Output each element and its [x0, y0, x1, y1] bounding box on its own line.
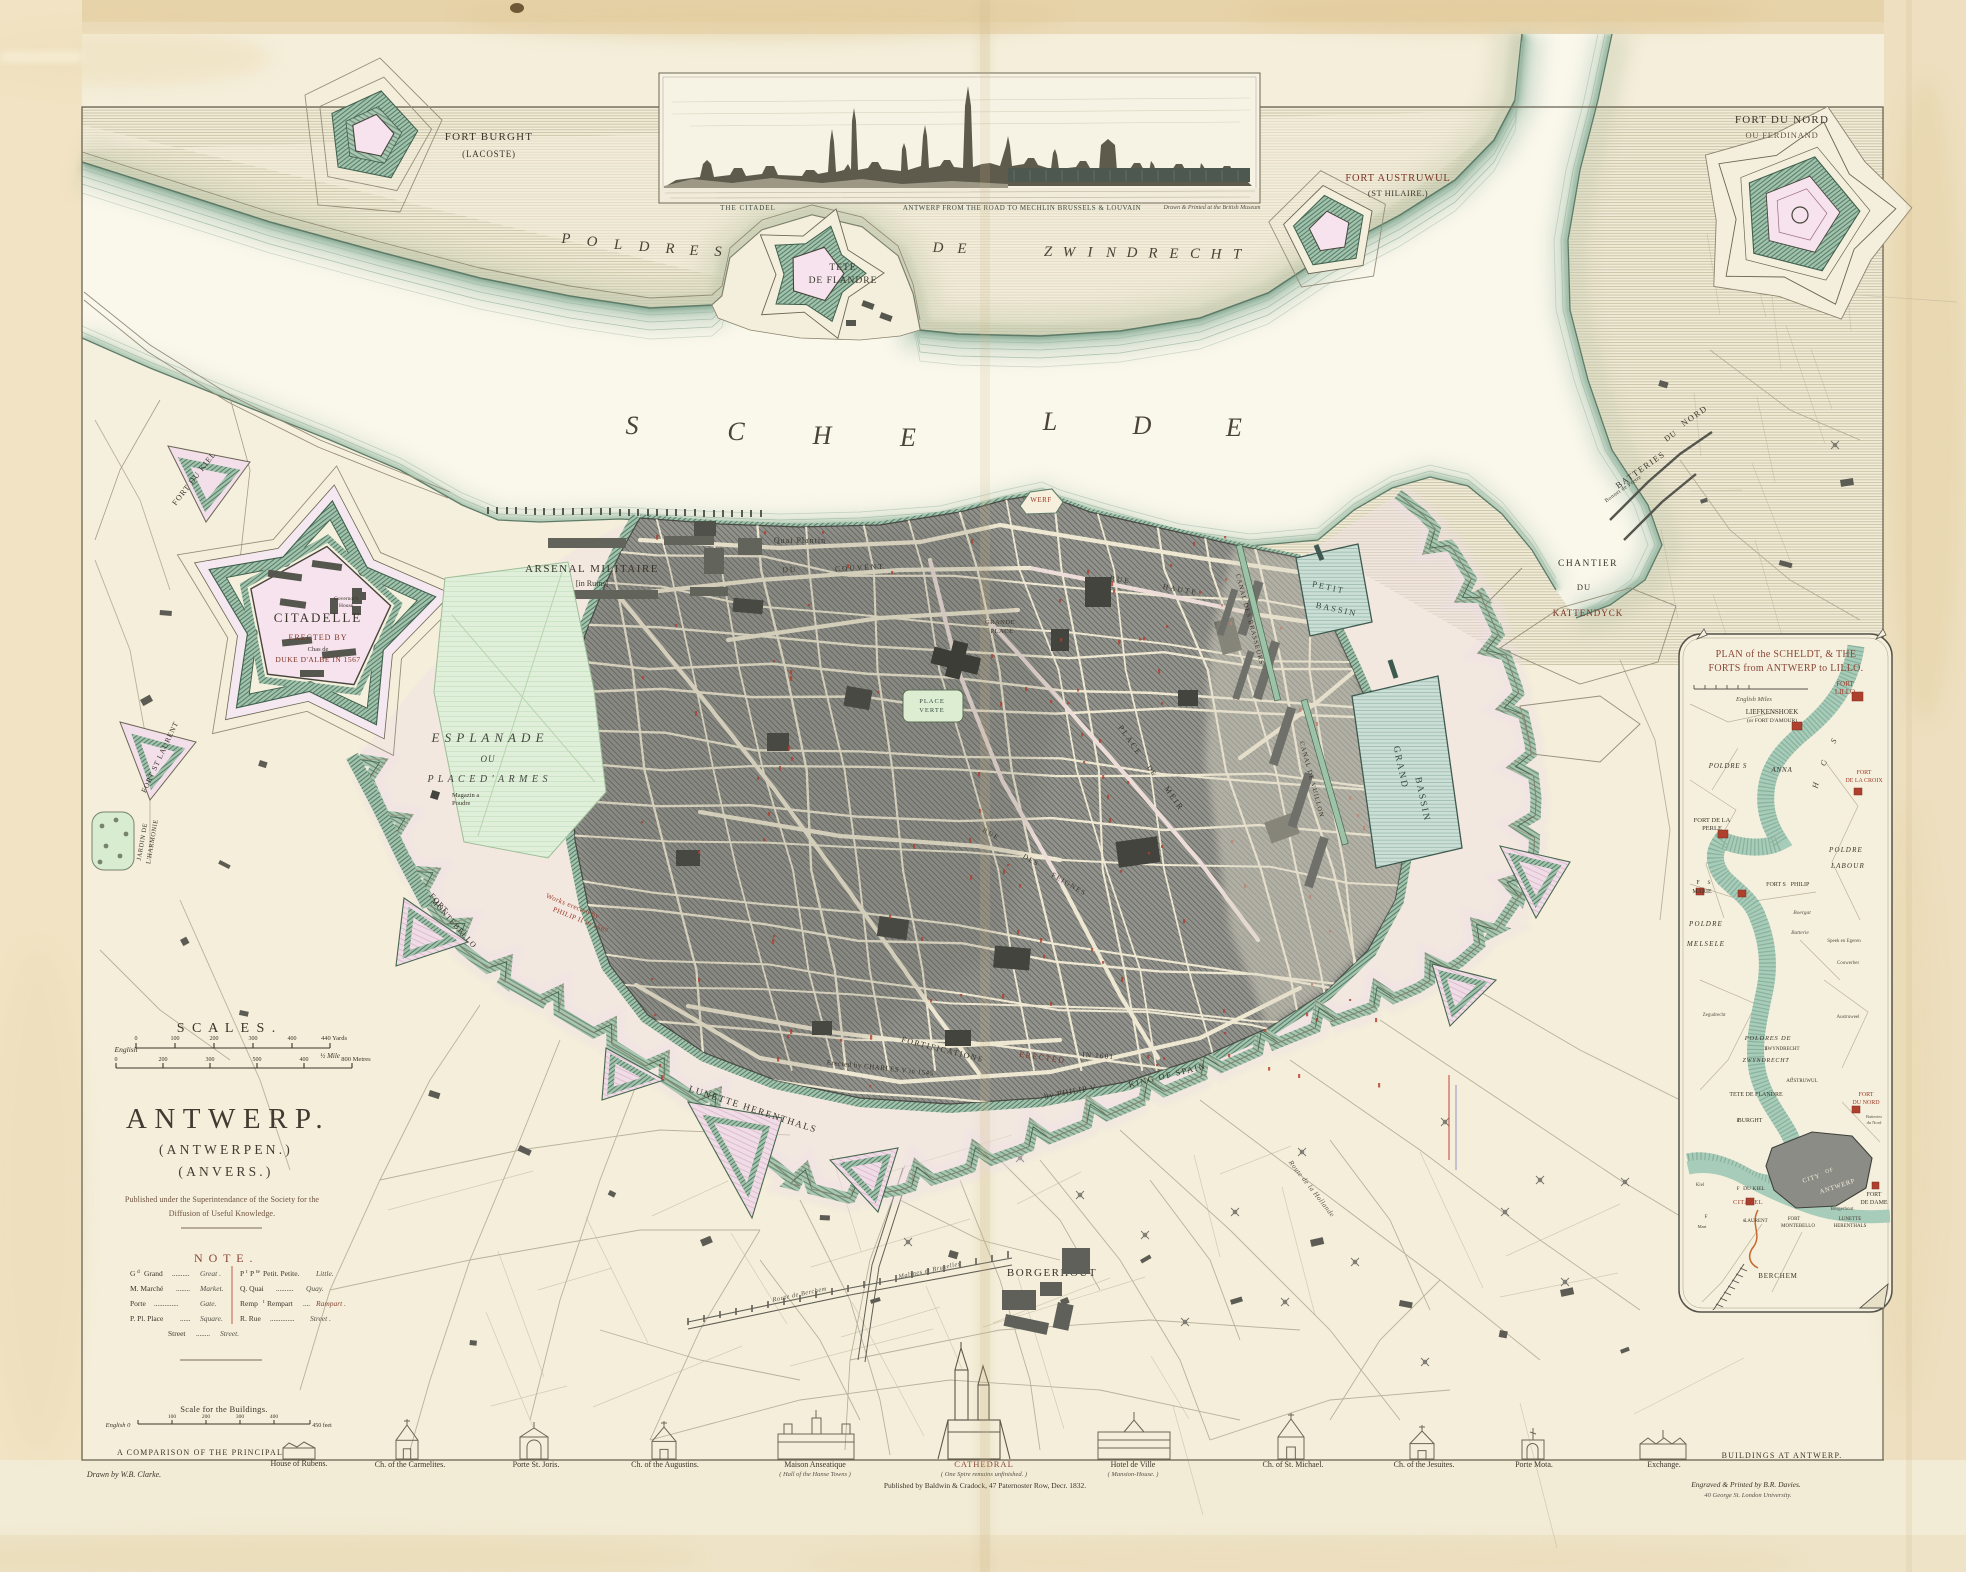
svg-text:G: G [130, 1269, 136, 1278]
svg-text:ANNA: ANNA [1770, 766, 1792, 774]
svg-text:OU FERDINAND: OU FERDINAND [1745, 130, 1818, 140]
svg-text:Mart: Mart [1698, 1224, 1707, 1229]
svg-text:POLDRE: POLDRE [1828, 846, 1863, 854]
svg-text:L: L [613, 237, 622, 253]
svg-text:BERCHEM: BERCHEM [1758, 1272, 1797, 1280]
svg-text:Gate.: Gate. [200, 1299, 217, 1308]
svg-text:Ch. of St. Michael.: Ch. of St. Michael. [1263, 1460, 1324, 1469]
svg-text:VERTE: VERTE [919, 707, 945, 714]
svg-text:450 feet: 450 feet [312, 1422, 332, 1429]
svg-text:CITADEL: CITADEL [1733, 1199, 1763, 1206]
svg-text:BUILDINGS AT ANTWERP.: BUILDINGS AT ANTWERP. [1722, 1451, 1843, 1460]
svg-text:MELSELE: MELSELE [1686, 940, 1725, 948]
svg-text:E: E [1225, 413, 1242, 442]
svg-text:CITADELLE: CITADELLE [274, 610, 362, 625]
svg-text:S C A L E S .: S C A L E S . [177, 1021, 278, 1036]
svg-text:100: 100 [168, 1414, 177, 1420]
svg-text:( Hall of the Hanse Towns ): ( Hall of the Hanse Towns ) [779, 1471, 851, 1478]
svg-text:DU: DU [1577, 582, 1591, 592]
svg-text:English Miles: English Miles [1735, 696, 1772, 703]
svg-text:200: 200 [210, 1036, 219, 1042]
svg-text:E: E [956, 241, 966, 257]
svg-text:Exchange.: Exchange. [1647, 1460, 1681, 1469]
svg-text:TETE DE FLANDRE: TETE DE FLANDRE [1729, 1092, 1783, 1098]
svg-text:Batteries: Batteries [1866, 1114, 1882, 1119]
svg-text:R: R [1147, 246, 1157, 262]
svg-text:W: W [1063, 244, 1077, 260]
svg-text:D: D [638, 239, 650, 255]
svg-text:FORT AUSTRUWUL: FORT AUSTRUWUL [1345, 173, 1450, 184]
svg-text:........: ........ [176, 1285, 190, 1293]
svg-text:House: House [339, 603, 354, 609]
svg-text:Rampart .: Rampart . [315, 1299, 346, 1308]
svg-text:CHANTIER: CHANTIER [1558, 559, 1618, 569]
svg-text:FORT: FORT [1857, 770, 1872, 776]
svg-text:........: ........ [196, 1330, 210, 1338]
svg-text:PLACE: PLACE [919, 698, 945, 705]
svg-text:E: E [688, 243, 698, 259]
svg-text:DE LA CROIX: DE LA CROIX [1845, 778, 1883, 784]
svg-text:Street.: Street. [220, 1329, 239, 1338]
svg-text:FORT DE LA: FORT DE LA [1694, 817, 1731, 824]
svg-text:Little.: Little. [315, 1269, 334, 1278]
svg-text:ANTWERP FROM THE ROAD TO: ANTWERP FROM THE ROAD TO MECHLIN BRUSSEL… [903, 204, 1141, 212]
svg-text:ARSENAL MILITAIRE: ARSENAL MILITAIRE [525, 563, 659, 575]
svg-text:0: 0 [135, 1036, 138, 1042]
svg-text:FORT DU NORD: FORT DU NORD [1735, 114, 1829, 126]
svg-text:POLDRES DE: POLDRES DE [1744, 1035, 1791, 1042]
svg-text:100: 100 [171, 1036, 180, 1042]
svg-text:Rempart: Rempart [267, 1299, 294, 1308]
svg-text:400: 400 [288, 1036, 297, 1042]
svg-text:HERENTHALS: HERENTHALS [1834, 1224, 1867, 1229]
svg-text:ERECTED BY: ERECTED BY [288, 633, 347, 642]
svg-text:POLDRE: POLDRE [1688, 920, 1723, 928]
svg-text:440 Yards: 440 Yards [321, 1035, 347, 1042]
svg-text:300: 300 [236, 1414, 245, 1420]
svg-text:E S P L A N A D E: E S P L A N A D E [430, 730, 544, 745]
svg-text:Diffusion of Useful Knowledge.: Diffusion of Useful Knowledge. [169, 1209, 275, 1218]
svg-text:Zegudrecht: Zegudrecht [1703, 1013, 1726, 1018]
svg-text:Drawn & Printed at the British: Drawn & Printed at the British Museum [1163, 205, 1262, 211]
svg-text:Borgerhout: Borgerhout [1831, 1207, 1854, 1212]
svg-text:(LACOSTE): (LACOSTE) [462, 149, 516, 159]
svg-text:..............: .............. [154, 1300, 179, 1308]
svg-text:800 Metres: 800 Metres [341, 1056, 371, 1063]
svg-text:Magazin a: Magazin a [452, 792, 479, 799]
svg-text:FORT: FORT [1859, 1092, 1874, 1098]
svg-text:M. Marché: M. Marché [130, 1284, 164, 1293]
svg-text:Hotel de Ville: Hotel de Ville [1111, 1460, 1156, 1469]
svg-text:P: P [560, 231, 570, 247]
svg-text:L: L [1042, 407, 1057, 436]
svg-text:S: S [626, 411, 639, 440]
svg-text:PLACE: PLACE [990, 628, 1013, 635]
svg-text:300: 300 [249, 1036, 258, 1042]
svg-text:English: English [114, 1045, 138, 1054]
svg-text:½ Mile: ½ Mile [320, 1052, 340, 1060]
svg-text:A COMPARISON OF THE PRINCI: A COMPARISON OF THE PRINCIPAL [117, 1448, 283, 1457]
svg-text:DE DAME: DE DAME [1860, 1200, 1887, 1206]
svg-text:Porte Mota.: Porte Mota. [1515, 1460, 1553, 1469]
svg-text:S: S [714, 244, 722, 260]
svg-text:LAURENT: LAURENT [1744, 1219, 1767, 1224]
svg-text:POLDRE S: POLDRE S [1708, 762, 1747, 770]
svg-text:Street .: Street . [310, 1314, 331, 1323]
svg-text:F: F [1737, 1187, 1740, 1192]
svg-text:FORT: FORT [1836, 680, 1854, 688]
svg-text:Ch. of the Augustins.: Ch. of the Augustins. [631, 1460, 699, 1469]
svg-text:FORT BURGHT: FORT BURGHT [445, 131, 533, 143]
svg-text:PLAN of the SCHELDT, & THE: PLAN of the SCHELDT, & THE [1716, 649, 1857, 660]
svg-text:....: .... [303, 1300, 310, 1308]
svg-text:Quai Plantin: Quai Plantin [774, 536, 826, 545]
svg-text:AUSTRUWUL: AUSTRUWUL [1786, 1079, 1817, 1084]
svg-text:Porte: Porte [130, 1299, 147, 1308]
svg-text:H: H [1210, 246, 1223, 262]
svg-text:F: F [1705, 1215, 1708, 1220]
svg-text:P L A C E D ' A R M E S: P L A C E D ' A R M E S [427, 774, 549, 785]
svg-text:Kiel: Kiel [1696, 1183, 1705, 1188]
svg-text:Ch. of the Carmelites.: Ch. of the Carmelites. [375, 1460, 445, 1469]
svg-text:..........: .......... [172, 1270, 190, 1278]
svg-text:LUNETTE: LUNETTE [1839, 1217, 1862, 1222]
svg-text:FORT S: FORT S [1766, 882, 1786, 888]
svg-text:Couwerber: Couwerber [1837, 961, 1860, 966]
svg-text:Scale for the Buildings.: Scale for the Buildings. [180, 1404, 267, 1414]
svg-text:400: 400 [300, 1057, 309, 1063]
svg-text:D: D [1132, 411, 1152, 440]
svg-text:300: 300 [206, 1057, 215, 1063]
svg-text:WERF: WERF [1030, 496, 1051, 504]
svg-text:N: N [1105, 245, 1117, 261]
svg-text:LABOUR: LABOUR [1830, 862, 1865, 870]
svg-text:C: C [727, 417, 745, 446]
svg-text:English 0: English 0 [105, 1422, 131, 1429]
svg-text:Quay.: Quay. [306, 1284, 324, 1293]
svg-text:O: O [587, 234, 598, 250]
svg-text:200: 200 [202, 1414, 211, 1420]
svg-text:......: ...... [180, 1315, 191, 1323]
svg-text:Governor's: Governor's [334, 596, 358, 602]
svg-text:KATTENDYCK: KATTENDYCK [1553, 608, 1624, 618]
svg-text:Great .: Great . [200, 1269, 221, 1278]
svg-text:(or FORT D'AMOUR): (or FORT D'AMOUR) [1747, 717, 1797, 724]
svg-text:400: 400 [270, 1414, 279, 1420]
svg-text:E: E [1168, 246, 1178, 262]
svg-text:200: 200 [159, 1057, 168, 1063]
svg-text:Batterie: Batterie [1791, 930, 1809, 936]
svg-text:(ANVERS.): (ANVERS.) [178, 1164, 273, 1179]
svg-text:..........: .......... [276, 1285, 294, 1293]
svg-text:DU KIEL: DU KIEL [1743, 1186, 1765, 1192]
svg-text:R. Rue: R. Rue [240, 1314, 262, 1323]
svg-text:Remp: Remp [240, 1299, 258, 1308]
svg-text:Market.: Market. [199, 1284, 224, 1293]
svg-text:OU: OU [481, 754, 496, 764]
svg-text:DU: DU [782, 565, 797, 575]
svg-text:P: P [240, 1269, 244, 1278]
svg-text:P. Pl. Place: P. Pl. Place [130, 1314, 164, 1323]
svg-text:d: d [137, 1269, 140, 1275]
svg-text:LILLO: LILLO [1835, 688, 1855, 696]
svg-text:Poudre: Poudre [452, 800, 471, 807]
svg-text:Z: Z [1044, 244, 1053, 260]
svg-text:te: te [256, 1269, 261, 1275]
svg-text:BURGHT: BURGHT [1738, 1118, 1763, 1124]
svg-text:House of Rubens.: House of Rubens. [270, 1459, 327, 1468]
svg-text:DE FLANDRE: DE FLANDRE [809, 276, 878, 286]
svg-text:Ch. of the Jesuites.: Ch. of the Jesuites. [1394, 1460, 1455, 1469]
svg-text:N O T E .: N O T E . [194, 1251, 254, 1265]
svg-text:(ST HILAIRE.): (ST HILAIRE.) [1368, 188, 1428, 198]
svg-text:..............: .............. [270, 1315, 295, 1323]
svg-text:FORT: FORT [1788, 1217, 1800, 1222]
svg-text:Boergat: Boergat [1793, 910, 1811, 916]
svg-text:(ANTWERPEN.): (ANTWERPEN.) [159, 1142, 293, 1157]
svg-text:ZWYNDRECHT: ZWYNDRECHT [1765, 1047, 1800, 1052]
svg-text:ANTWERP.: ANTWERP. [126, 1103, 330, 1135]
svg-text:DUKE D'ALBE IN 1567: DUKE D'ALBE IN 1567 [275, 655, 360, 664]
svg-text:40 George St. London Universit: 40 George St. London University. [1704, 1492, 1792, 1499]
svg-text:FORTS from ANTWERP to LILLO.: FORTS from ANTWERP to LILLO. [1709, 663, 1864, 674]
svg-text:THE CITADEL: THE CITADEL [720, 204, 776, 212]
svg-text:PERLE: PERLE [1702, 825, 1722, 832]
svg-text:[in Ruins]: [in Ruins] [576, 579, 609, 588]
svg-text:500: 500 [253, 1057, 262, 1063]
svg-text:MONTEBELLO: MONTEBELLO [1781, 1224, 1815, 1229]
svg-text:C: C [1190, 246, 1201, 262]
svg-text:Square.: Square. [200, 1314, 223, 1323]
svg-text:TETE: TETE [829, 263, 856, 273]
svg-text:0: 0 [115, 1057, 118, 1063]
svg-text:D: D [932, 240, 944, 256]
svg-text:DU NORD: DU NORD [1852, 1100, 1880, 1106]
svg-text:S: S [1707, 880, 1710, 886]
svg-text:I: I [1087, 245, 1094, 261]
svg-text:E: E [899, 423, 916, 452]
svg-text:Speek en Egeren: Speek en Egeren [1827, 939, 1861, 944]
svg-text:R: R [664, 241, 674, 257]
svg-text:Drawn by W.B. Clarke.: Drawn by W.B. Clarke. [86, 1470, 161, 1479]
svg-text:Engraved & Printed by B.R. Dav: Engraved & Printed by B.R. Davies. [1690, 1480, 1801, 1489]
svg-text:du Nord: du Nord [1867, 1120, 1883, 1125]
svg-text:PHILIP: PHILIP [1791, 882, 1810, 888]
svg-text:ZWYNDRECHT: ZWYNDRECHT [1742, 1058, 1789, 1064]
svg-text:Grand: Grand [144, 1269, 163, 1278]
svg-text:H: H [812, 421, 833, 450]
svg-text:Maison Anseatique: Maison Anseatique [784, 1460, 846, 1469]
svg-text:Street: Street [168, 1329, 186, 1338]
svg-text:Published under the Superinten: Published under the Superintendance of t… [125, 1195, 320, 1204]
svg-text:Q. Quai: Q. Quai [240, 1284, 264, 1293]
svg-text:Porte St. Joris.: Porte St. Joris. [513, 1460, 560, 1469]
svg-text:D: D [1126, 245, 1138, 261]
svg-text:Petit. Petite.: Petit. Petite. [263, 1269, 300, 1278]
svg-text:LIEFKENSHOEK: LIEFKENSHOEK [1746, 708, 1799, 716]
svg-text:FORT: FORT [1867, 1192, 1882, 1198]
svg-text:P: P [250, 1269, 254, 1278]
svg-text:Chas de: Chas de [308, 646, 329, 653]
svg-text:( Mansion-House. ): ( Mansion-House. ) [1108, 1471, 1159, 1478]
svg-text:MARIE: MARIE [1692, 889, 1712, 895]
svg-text:Austruweel: Austruweel [1836, 1015, 1860, 1020]
